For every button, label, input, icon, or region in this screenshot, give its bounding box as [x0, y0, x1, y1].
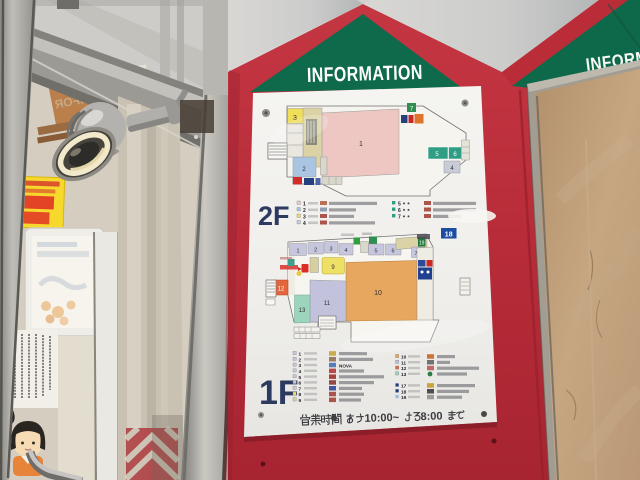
- svg-text:8: 8: [299, 392, 302, 398]
- svg-text:6: 6: [398, 208, 401, 214]
- svg-text:8:00: 8:00: [420, 410, 442, 423]
- svg-text:6: 6: [391, 249, 394, 255]
- svg-text:6: 6: [299, 381, 302, 387]
- svg-text:3: 3: [303, 214, 306, 220]
- svg-text:1: 1: [359, 141, 363, 148]
- svg-text:1: 1: [296, 249, 299, 255]
- svg-text:3: 3: [299, 363, 302, 369]
- svg-text:7: 7: [299, 386, 302, 392]
- svg-text:INFORMATION: INFORMATION: [307, 60, 423, 86]
- svg-text:5: 5: [398, 201, 401, 207]
- svg-text:1F: 1F: [259, 374, 299, 412]
- svg-text:19: 19: [401, 395, 407, 401]
- svg-text:7: 7: [398, 214, 401, 220]
- svg-text:5: 5: [374, 249, 377, 255]
- svg-text:2: 2: [299, 357, 302, 363]
- svg-text:13: 13: [299, 308, 306, 314]
- svg-text:12: 12: [401, 366, 407, 372]
- svg-text:5: 5: [299, 375, 302, 381]
- svg-text:2: 2: [303, 208, 306, 214]
- svg-text:10: 10: [374, 290, 382, 297]
- svg-text:17: 17: [401, 384, 407, 390]
- svg-text:13: 13: [401, 372, 407, 378]
- svg-text:4: 4: [303, 221, 306, 227]
- svg-text:NOVA: NOVA: [339, 363, 353, 368]
- svg-text:4: 4: [299, 369, 302, 375]
- svg-text:1: 1: [299, 352, 302, 358]
- svg-text:12: 12: [278, 287, 285, 293]
- svg-text:2: 2: [314, 248, 317, 254]
- svg-text:11: 11: [324, 301, 331, 307]
- svg-text:4: 4: [344, 248, 347, 254]
- svg-text:11: 11: [401, 360, 406, 366]
- svg-text:18: 18: [445, 232, 453, 239]
- svg-text:9: 9: [299, 398, 302, 404]
- svg-text:18: 18: [401, 389, 407, 395]
- svg-text:10:00~: 10:00~: [364, 412, 399, 425]
- svg-text:1: 1: [303, 201, 306, 207]
- svg-text:10: 10: [401, 355, 407, 361]
- svg-text:19: 19: [419, 241, 425, 247]
- svg-text:2F: 2F: [258, 201, 290, 231]
- svg-text:3: 3: [329, 247, 332, 253]
